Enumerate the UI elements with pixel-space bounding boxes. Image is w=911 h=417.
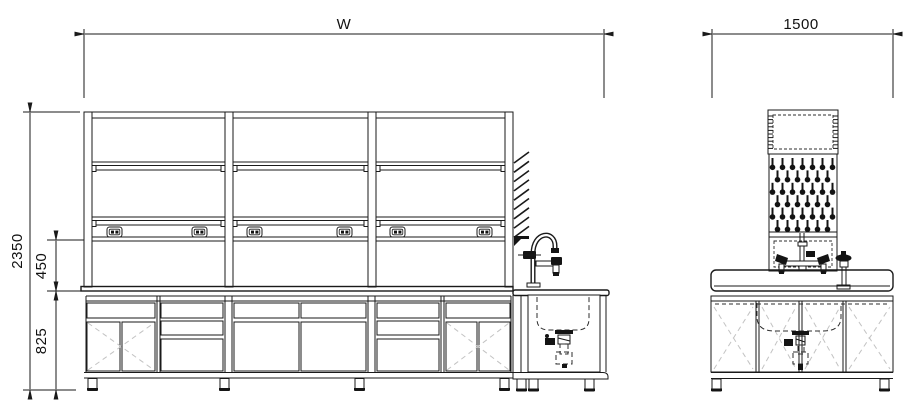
drawer — [87, 303, 155, 318]
power-outlet-icon — [107, 227, 122, 237]
hatch-bracket — [514, 236, 529, 246]
cabinet-door — [234, 322, 299, 371]
power-outlet-icon — [390, 227, 405, 237]
dim-label-825: 825 — [33, 328, 50, 355]
power-outlet-icon — [192, 227, 207, 237]
dim-label-450: 450 — [33, 253, 50, 280]
blueprint-canvas: W 1500 2350 450 825 — [0, 0, 911, 417]
sink-unit — [513, 295, 608, 391]
leg — [711, 379, 722, 391]
cabinet-module-drawers — [161, 303, 223, 371]
leg — [499, 379, 510, 391]
benchtop — [81, 287, 513, 292]
gooseneck-faucet-icon — [518, 235, 562, 287]
drawer — [161, 339, 223, 371]
shelf-top-rail — [84, 112, 513, 118]
pegboard — [769, 154, 837, 237]
cabinet-door — [122, 322, 155, 371]
leg — [354, 379, 365, 391]
cabinet-module-drawer-doors — [446, 303, 510, 371]
drawer — [161, 303, 223, 318]
drawer — [446, 303, 510, 318]
sink-plinth — [513, 373, 608, 380]
drawer — [377, 321, 439, 335]
leg — [516, 379, 527, 391]
dim-label-w: W — [337, 16, 352, 33]
leg — [584, 379, 595, 391]
front-elevation — [81, 112, 609, 391]
cabinet-module-drawers — [377, 303, 439, 371]
dim-label-1500: 1500 — [783, 16, 818, 33]
drawer — [234, 303, 299, 318]
wall-hatch — [514, 152, 529, 237]
reagent-shelf — [92, 162, 225, 172]
side-counter — [711, 270, 893, 291]
shelf-bottom-rail — [376, 237, 505, 241]
leg — [87, 379, 98, 391]
reagent-shelf — [233, 162, 368, 172]
dimension-side-width: 1500 — [712, 16, 893, 98]
cabinet-door — [479, 322, 510, 371]
dimension-bench-height: 825 — [33, 292, 56, 389]
shelf-bottom-rail — [233, 237, 368, 241]
leg — [219, 379, 230, 391]
shelf-post — [84, 112, 92, 287]
power-outlet-icon — [477, 227, 492, 237]
reagent-shelf — [92, 217, 225, 227]
shelf-bottom-rail — [92, 237, 225, 241]
drawer — [161, 321, 223, 335]
leg — [528, 379, 539, 391]
reagent-shelf-frame — [84, 112, 513, 287]
drawer — [377, 339, 439, 371]
shelf-post — [505, 112, 513, 287]
splash-panel — [768, 110, 838, 154]
dimension-shelf-to-bench: 450 — [33, 240, 86, 291]
base-cabinets — [84, 296, 513, 391]
power-outlet-icon — [337, 227, 352, 237]
shelf-post — [368, 112, 376, 287]
cabinet-door — [87, 322, 120, 371]
cabinet-door — [301, 322, 366, 371]
side-elevation — [711, 110, 893, 391]
drawer — [301, 303, 366, 318]
side-cabinet — [711, 296, 893, 391]
pegboard-sill — [769, 232, 837, 237]
reagent-shelf — [376, 217, 505, 227]
reagent-shelf — [233, 217, 368, 227]
shelf-post — [225, 112, 233, 287]
drawer — [377, 303, 439, 318]
leg — [879, 379, 890, 391]
dimension-front-width: W — [84, 16, 604, 98]
cabinet-module-drawers-doors — [234, 303, 366, 371]
cabinet-module-drawer-doors — [87, 303, 155, 371]
cabinet-door — [446, 322, 477, 371]
dim-label-2350: 2350 — [9, 233, 26, 268]
reagent-shelf — [376, 162, 505, 172]
power-outlet-icon — [247, 227, 262, 237]
